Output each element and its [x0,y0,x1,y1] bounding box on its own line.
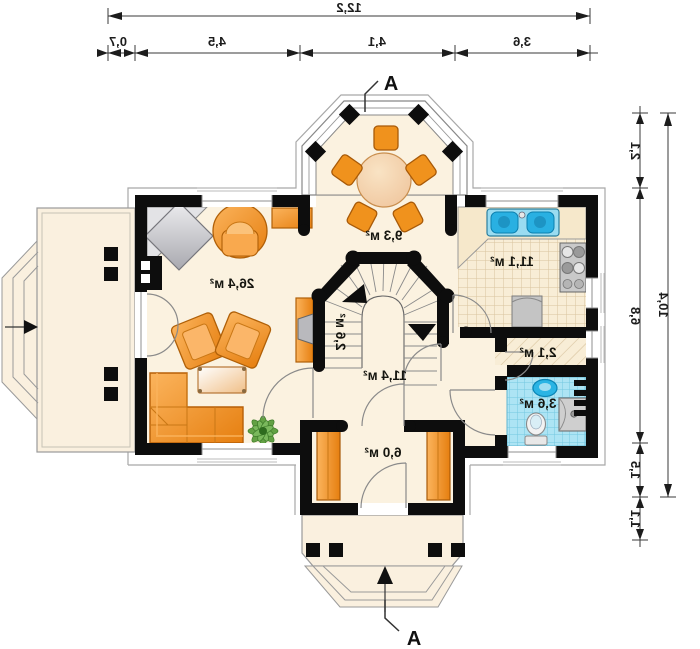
floor-plan-sheet: 26,4 м² 9,3 м² 11,1 м² 2,6 м² 11,4 м² 2,… [0,0,700,649]
bath-sink [533,380,557,397]
room-label-living: 26,4 м² [209,276,254,291]
section-letter-bottom: A [407,628,421,649]
kitchen-appliance [512,296,542,327]
dim-top-seg-3: 4,1 [368,34,386,49]
dim-right-seg-2: 6,8 [628,307,643,325]
floor-plan-drawing: 26,4 м² 9,3 м² 11,1 м² 2,6 м² 11,4 м² 2,… [0,0,700,649]
toilet [525,413,547,445]
dim-right-seg-3: 1,5 [628,461,643,479]
dimension-top-labels: 12,2 0,7 4,5 4,1 3,6 [109,0,531,49]
room-label-dining: 9,3 м² [365,228,403,243]
room-label-kitchen: 11,1 м² [490,254,534,269]
bathroom [507,377,588,446]
dim-right-seg-4: 1,1 [628,510,643,528]
armchair-round [213,204,267,258]
dim-right-seg-1: 2,1 [628,142,643,160]
terrace [2,208,135,452]
dimension-right-labels: 2,1 6,8 1,5 1,1 10,4 [628,142,671,528]
entrance-porch [302,515,465,612]
room-label-bath: 3,6 м² [519,396,557,411]
dim-top-seg-4: 3,6 [513,34,531,49]
dining-table [357,153,411,207]
tv-cabinet [296,298,313,362]
room-label-stairs: 2,6 м² [333,313,348,351]
dim-top-seg-2: 4,5 [208,34,226,49]
dim-total-width: 12,2 [336,0,361,15]
dim-total-height: 10,4 [656,292,671,318]
section-letter-top: A [384,73,398,95]
room-label-entry: 6,0 м² [364,445,402,460]
stove [560,243,586,292]
plant [248,416,278,446]
room-label-wc: 2,1 м² [519,345,557,360]
room-label-hall: 11,4 м² [363,368,407,383]
dim-top-seg-1: 0,7 [109,34,127,49]
dimension-right [632,106,676,547]
kitchen-sink [487,209,559,236]
coffee-table [198,367,246,393]
